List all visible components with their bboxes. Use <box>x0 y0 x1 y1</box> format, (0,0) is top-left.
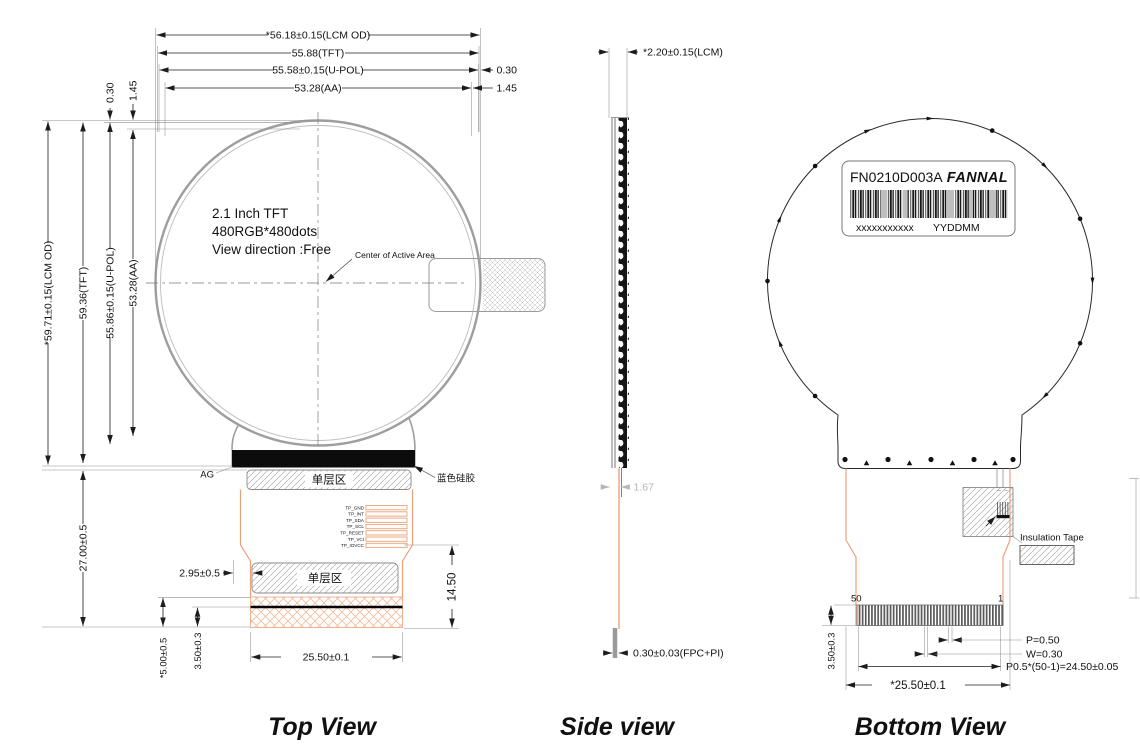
insulation-tape-area: Insulation Tape <box>963 488 1084 565</box>
dim-lcm-od-height: *59.71±0.15(LCM OD) <box>43 241 55 345</box>
top-view: *56.18±0.15(LCM OD) 55.88(TFT) 55.58±0.1… <box>42 28 545 678</box>
pin-label-tp-sda: TP_SDA <box>346 518 365 523</box>
pin-number-1: 1 <box>998 594 1003 605</box>
product-label: FN0210D003A FANNAL xxxxxxxxxxx YYDDMM <box>842 161 1015 236</box>
label-date: YYDDMM <box>933 222 980 234</box>
pin-label-tp-gnd: TP_GND <box>345 505 364 510</box>
bottom-edge-marks <box>842 457 1015 465</box>
dim-stiffener-1: 3.50±0.3 <box>193 633 204 670</box>
dim-thickness: *2.20±0.15(LCM) <box>643 47 723 59</box>
dim-fpc-width-top: 25.50±0.1 <box>303 652 350 664</box>
bottom-view: FN0210D003A FANNAL xxxxxxxxxxx YYDDMM <box>765 117 1139 692</box>
dim-tail-right: 14.50 <box>447 573 459 602</box>
dim-lcm-od-width: *56.18±0.15(LCM OD) <box>266 30 370 42</box>
barcode <box>849 190 1008 218</box>
pin-number-50: 50 <box>851 594 862 605</box>
panel-description: 2.1 Inch TFT 480RGB*480dots View directi… <box>212 206 331 257</box>
dim-upol-width: 55.58±0.15(U-POL) <box>272 65 364 77</box>
dim-tail-height: 27.00±0.5 <box>78 525 90 572</box>
dim-gap-top-030: 0.30 <box>105 82 117 103</box>
pin-label-tp-reset: TP_RESET <box>340 531 364 536</box>
title-top-view: Top View <box>268 713 377 741</box>
connector-dimensions: P=0.50 W=0.30 P0.5*(50-1)=24.50±0.05 *25… <box>822 560 1118 692</box>
black-bezel-bar <box>232 450 415 468</box>
dim-stiffener-2: *5.00±0.5 <box>159 638 170 679</box>
dim-aa-height: 53.28(AA) <box>128 259 140 306</box>
dim-gap-right-030: 0.30 <box>497 65 518 77</box>
touch-fpc-tab <box>429 259 545 312</box>
connector-fingers <box>857 605 1003 626</box>
dim-aa-width: 53.28(AA) <box>294 83 341 95</box>
insulation-tape-label: Insulation Tape <box>1020 533 1084 544</box>
panel-size-text: 2.1 Inch TFT <box>212 206 288 221</box>
dim-offset: 1.67 <box>634 482 655 494</box>
side-view: *2.20±0.15(LCM) 1.67 0.30±0.03(FPC+PI) <box>598 47 724 660</box>
center-of-active-area-label: Center of Active Area <box>355 250 435 260</box>
title-side-view: Side view <box>560 713 675 741</box>
pin-label-tp-scl: TP_SCL <box>347 524 365 529</box>
stiffener-crosshatch <box>251 597 403 628</box>
single-layer-label-1: 单层区 <box>312 474 347 487</box>
dim-fpc-thickness: 0.30±0.03(FPC+PI) <box>633 648 724 660</box>
panel-viewdir-text: View direction :Free <box>212 242 331 257</box>
perimeter-marks <box>765 117 1094 400</box>
single-layer-label-2: 单层区 <box>308 572 343 585</box>
side-profile-pattern <box>619 118 630 468</box>
dim-tft-height: 59.36(TFT) <box>78 267 90 320</box>
label-model: FN0210D003A <box>850 169 943 185</box>
single-layer-zone-2: 单层区 <box>252 563 398 593</box>
touch-pin-pads: TP_GND TP_INT TP_SDA TP_SCL TP_RESET TP_… <box>340 505 407 548</box>
pin-label-tp-iovcc: TP_IOVCC <box>341 543 365 548</box>
silicone-label: 蓝色硅胶 <box>437 473 476 485</box>
dim-upol-height: 55.86±0.15(U-POL) <box>105 247 117 339</box>
lcd-module-drawing: *56.18±0.15(LCM OD) 55.88(TFT) 55.58±0.1… <box>0 0 1140 749</box>
single-layer-zone-1: 单层区 <box>247 470 411 490</box>
title-bottom-view: Bottom View <box>855 713 1007 741</box>
dim-fpc-width-bottom: *25.50±0.1 <box>890 680 946 692</box>
dim-gap-right-145: 1.45 <box>497 83 518 95</box>
label-brand: FANNAL <box>947 170 1008 186</box>
label-serial: xxxxxxxxxxx <box>856 222 915 234</box>
pin-label-tp-int: TP_INT <box>348 512 364 517</box>
dim-tft-width: 55.88(TFT) <box>292 48 345 60</box>
panel-resolution-text: 480RGB*480dots <box>212 224 317 239</box>
ag-label: AG <box>200 470 214 481</box>
view-titles: Top View Side view Bottom View <box>268 713 1007 741</box>
top-view-height-dimensions: *59.71±0.15(LCM OD) 59.36(TFT) 55.86±0.1… <box>43 80 140 626</box>
dim-connector-height: 3.50±0.3 <box>827 633 838 670</box>
dim-offset-left: 2.95±0.5 <box>179 568 220 580</box>
insulation-tape-legend <box>1020 546 1074 565</box>
pin-label-tp-vci: TP_VCI <box>348 537 364 542</box>
fpc-left-edge <box>241 490 251 598</box>
dim-finger-width: W=0.30 <box>1026 649 1063 661</box>
dim-pitch: P=0.50 <box>1026 635 1060 647</box>
dim-gap-top-145: 1.45 <box>128 80 140 101</box>
top-view-width-dimensions: *56.18±0.15(LCM OD) 55.88(TFT) 55.58±0.1… <box>157 30 518 95</box>
dim-total-pitch: P0.5*(50-1)=24.50±0.05 <box>1006 661 1118 673</box>
